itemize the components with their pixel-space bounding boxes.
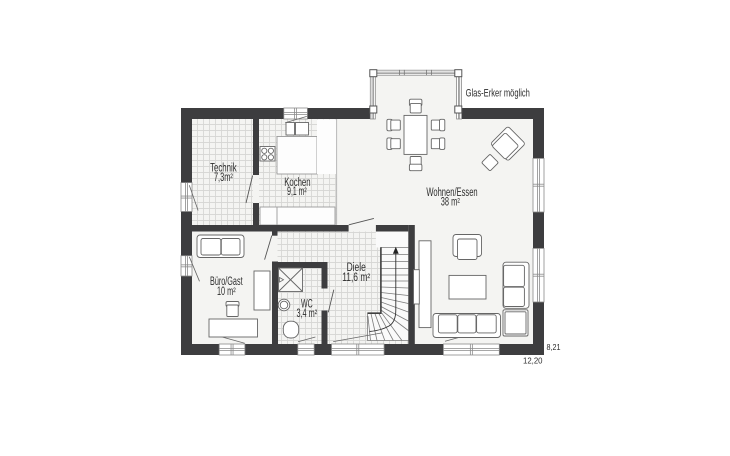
svg-text:Glas-Erker möglich: Glas-Erker möglich bbox=[466, 88, 530, 100]
svg-text:9,1 m²: 9,1 m² bbox=[287, 186, 307, 198]
svg-text:10 m²: 10 m² bbox=[217, 286, 236, 298]
svg-text:12,20: 12,20 bbox=[523, 356, 543, 366]
svg-text:11,6 m²: 11,6 m² bbox=[342, 272, 370, 284]
svg-text:8,21: 8,21 bbox=[547, 342, 561, 352]
svg-text:38 m²: 38 m² bbox=[441, 196, 460, 208]
svg-text:7,3m²: 7,3m² bbox=[214, 172, 233, 184]
svg-text:3,4 m²: 3,4 m² bbox=[296, 308, 317, 320]
